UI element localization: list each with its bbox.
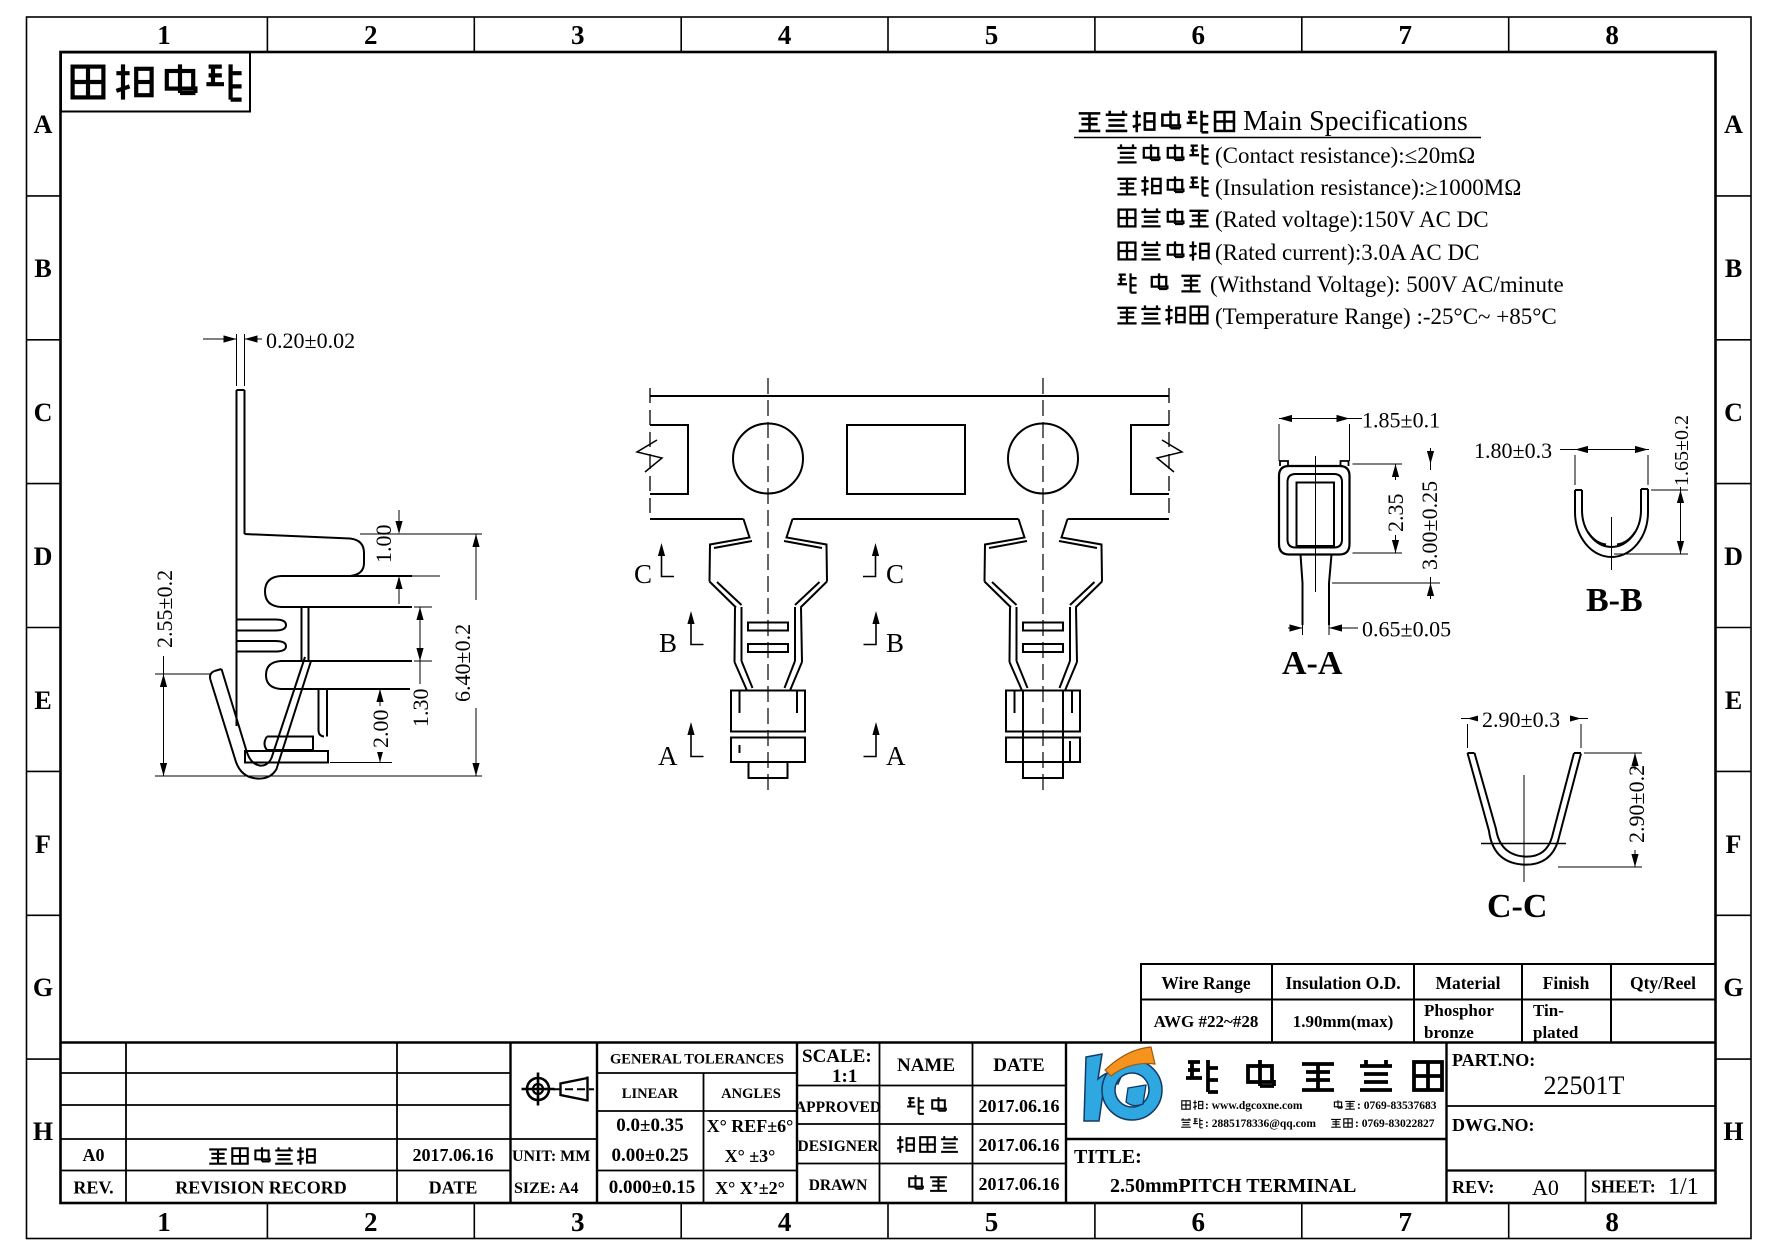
svg-text:Phosphor: Phosphor [1424,1001,1494,1020]
svg-text:3: 3 [571,20,585,50]
svg-text:REV:: REV: [1452,1177,1494,1197]
svg-text:A: A [886,741,906,771]
svg-text:B: B [886,628,904,658]
svg-text:SCALE:: SCALE: [802,1046,872,1067]
svg-text:A-A: A-A [1282,645,1343,682]
svg-text:1/1: 1/1 [1668,1174,1699,1200]
svg-text:3: 3 [571,1207,585,1237]
svg-text:B-B: B-B [1586,582,1643,619]
svg-text:SHEET:: SHEET: [1591,1177,1656,1197]
svg-text:A0: A0 [83,1145,105,1165]
svg-text:A: A [1724,110,1743,139]
svg-text:4: 4 [778,20,792,50]
svg-text:22501T: 22501T [1544,1071,1625,1100]
svg-text:Insulation O.D.: Insulation O.D. [1285,973,1400,993]
svg-text:GENERAL TOLERANCES: GENERAL TOLERANCES [610,1052,784,1068]
svg-text:Material: Material [1435,973,1500,993]
svg-text:C-C: C-C [1487,888,1547,925]
svg-text:2.90±0.2: 2.90±0.2 [1624,765,1649,843]
svg-text:ANGLES: ANGLES [721,1086,781,1102]
svg-text:A: A [34,110,53,139]
svg-text:2: 2 [364,1207,378,1237]
svg-text:: www.dgcoxne.com: : www.dgcoxne.com [1205,1100,1303,1112]
svg-text:UNIT: MM: UNIT: MM [512,1148,590,1165]
svg-text:2.00: 2.00 [368,710,393,749]
svg-text:TITLE:: TITLE: [1074,1146,1142,1168]
svg-text:0.65±0.05: 0.65±0.05 [1362,617,1451,642]
svg-text:0.00±0.25: 0.00±0.25 [612,1145,689,1166]
svg-text:E: E [1725,686,1742,715]
svg-text:AWG #22~#28: AWG #22~#28 [1154,1012,1259,1031]
svg-text:DESIGNER: DESIGNER [798,1138,880,1155]
svg-text:H: H [33,1117,53,1146]
svg-text:DRAWN: DRAWN [809,1177,868,1194]
svg-text:E: E [34,686,51,715]
svg-text:G: G [1723,973,1743,1002]
svg-text:Finish: Finish [1543,973,1590,993]
svg-text:H: H [1723,1117,1743,1146]
svg-text:X° X’±2°: X° X’±2° [715,1178,785,1198]
svg-text:LINEAR: LINEAR [622,1086,679,1102]
svg-text:3.00±0.25: 3.00±0.25 [1417,481,1442,570]
svg-text:SIZE: A4: SIZE: A4 [514,1180,578,1197]
svg-text:6: 6 [1192,1207,1206,1237]
svg-text:DATE: DATE [993,1055,1044,1076]
svg-text:F: F [1726,830,1742,859]
svg-text:: 2885178336@qq.com: : 2885178336@qq.com [1205,1118,1316,1130]
svg-text:D: D [1724,542,1743,571]
svg-text:(Withstand Voltage): 500V AC/m: (Withstand Voltage): 500V AC/minute [1210,272,1564,297]
svg-text:Tin-: Tin- [1533,1001,1564,1020]
svg-text:2017.06.16: 2017.06.16 [979,1135,1060,1155]
svg-text:2017.06.16: 2017.06.16 [979,1096,1060,1116]
svg-text:1.00: 1.00 [371,525,396,564]
svg-text:1: 1 [157,1207,171,1237]
svg-text:8: 8 [1605,20,1619,50]
svg-text:0.20±0.02: 0.20±0.02 [266,328,355,353]
svg-text:REVISION RECORD: REVISION RECORD [175,1178,347,1198]
svg-text:1: 1 [157,20,171,50]
svg-text:1.65±0.2: 1.65±0.2 [1671,415,1693,486]
svg-text:B: B [1725,254,1742,283]
svg-text:DATE: DATE [429,1178,478,1198]
svg-text:2.50mmPITCH TERMINAL: 2.50mmPITCH TERMINAL [1110,1175,1356,1197]
svg-text:PART.NO:: PART.NO: [1452,1050,1535,1070]
svg-text:B: B [659,628,677,658]
svg-text:D: D [34,542,53,571]
svg-text:6: 6 [1192,20,1206,50]
svg-text:2: 2 [364,20,378,50]
svg-text:6.40±0.2: 6.40±0.2 [450,624,475,702]
svg-text:X° ±3°: X° ±3° [725,1146,776,1166]
svg-text:(Rated current):3.0A AC DC: (Rated current):3.0A AC DC [1215,240,1479,265]
svg-text:1.90mm(max): 1.90mm(max) [1293,1012,1394,1031]
svg-text:Qty/Reel: Qty/Reel [1630,973,1696,993]
svg-text:1:1: 1:1 [832,1066,857,1087]
svg-text:X° REF±6°: X° REF±6° [707,1116,794,1136]
svg-text:Main Specifications: Main Specifications [1243,106,1468,137]
svg-text:1.80±0.3: 1.80±0.3 [1474,438,1552,463]
svg-text:5: 5 [985,20,999,50]
svg-text:APPROVED: APPROVED [795,1099,881,1116]
svg-text:(Rated voltage):150V AC DC: (Rated voltage):150V AC DC [1215,207,1489,232]
svg-text:2.55±0.2: 2.55±0.2 [152,570,177,648]
svg-text:2017.06.16: 2017.06.16 [979,1174,1060,1194]
svg-text:plated: plated [1533,1023,1579,1042]
svg-text:NAME: NAME [897,1055,955,1076]
svg-text:8: 8 [1605,1207,1619,1237]
svg-text:1.30: 1.30 [408,689,433,728]
svg-text:Wire Range: Wire Range [1161,973,1251,993]
svg-text:B: B [34,254,51,283]
svg-text:: 0769-83537683: : 0769-83537683 [1357,1100,1437,1112]
svg-text:DWG.NO:: DWG.NO: [1452,1115,1535,1135]
svg-text:REV.: REV. [73,1178,113,1198]
svg-text:7: 7 [1398,1207,1412,1237]
svg-text:A0: A0 [1532,1175,1559,1200]
svg-text:2017.06.16: 2017.06.16 [413,1145,494,1165]
svg-text:2.90±0.3: 2.90±0.3 [1482,707,1560,732]
svg-text:C: C [886,559,904,589]
svg-text:2.35: 2.35 [1383,494,1408,533]
svg-text:C: C [34,398,53,427]
svg-text:bronze: bronze [1424,1023,1474,1042]
svg-text:C: C [634,559,652,589]
svg-text:F: F [35,830,51,859]
svg-text:C: C [1724,398,1743,427]
svg-text:0.0±0.35: 0.0±0.35 [616,1115,683,1136]
svg-text:: 0769-83022827: : 0769-83022827 [1355,1118,1435,1130]
svg-text:(Contact resistance):≤20mΩ: (Contact resistance):≤20mΩ [1215,143,1475,168]
svg-text:4: 4 [778,1207,792,1237]
svg-text:7: 7 [1398,20,1412,50]
svg-text:1.85±0.1: 1.85±0.1 [1362,408,1440,433]
svg-text:0.000±0.15: 0.000±0.15 [609,1177,695,1198]
svg-text:A: A [658,741,678,771]
svg-text:(Insulation resistance):≥1000M: (Insulation resistance):≥1000MΩ [1215,175,1521,200]
svg-text:(Temperature Range) :-25°C~ +8: (Temperature Range) :-25°C~ +85°C [1215,304,1557,329]
svg-text:5: 5 [985,1207,999,1237]
svg-text:G: G [33,973,53,1002]
